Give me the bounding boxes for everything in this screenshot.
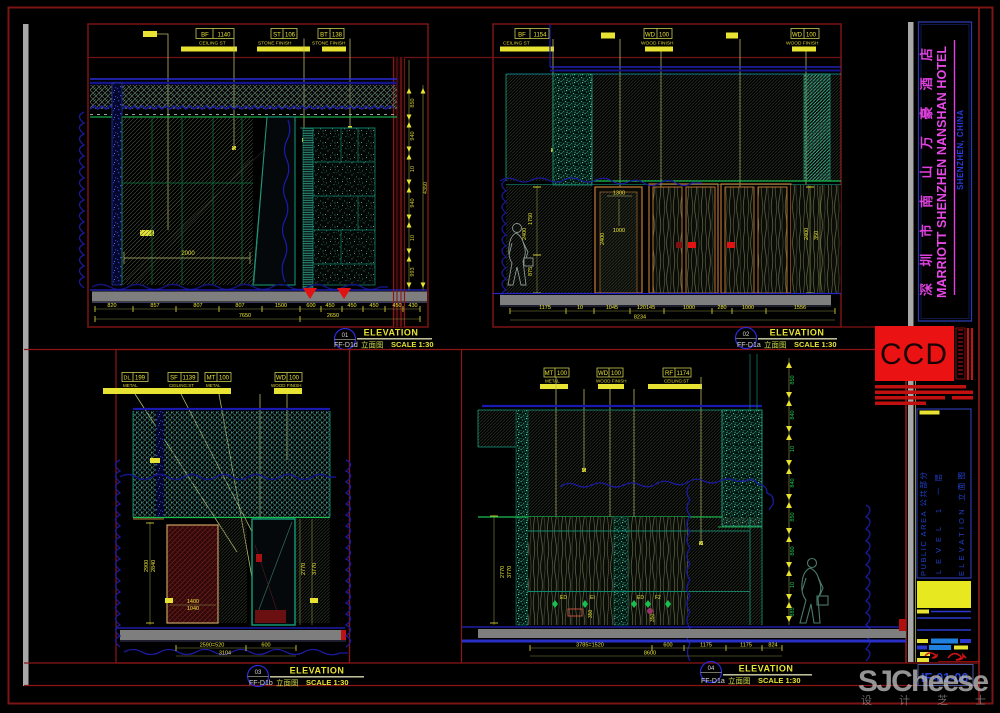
svg-text:BT: BT — [320, 33, 328, 39]
svg-text:1175: 1175 — [539, 305, 551, 311]
svg-text:FF-D1b: FF-D1b — [249, 680, 273, 687]
svg-text:840: 840 — [790, 410, 796, 419]
svg-text:SJCheese: SJCheese — [858, 665, 989, 698]
svg-text:350: 350 — [814, 231, 820, 240]
svg-text:CEILING ST: CEILING ST — [503, 41, 530, 47]
svg-text:2770: 2770 — [500, 566, 506, 578]
svg-text:8234: 8234 — [634, 315, 646, 321]
svg-text:深圳市南山万豪酒店: 深圳市南山万豪酒店 — [919, 48, 934, 296]
svg-text:ELEVATION: ELEVATION — [739, 664, 794, 674]
svg-text:FF-D1d: FF-D1d — [334, 342, 358, 349]
svg-text:SCALE 1:30: SCALE 1:30 — [758, 676, 801, 685]
svg-text:2900: 2900 — [144, 560, 150, 572]
svg-text:875: 875 — [528, 267, 534, 276]
svg-text:FF-D1a: FF-D1a — [737, 342, 761, 349]
svg-text:100: 100 — [219, 376, 230, 382]
svg-text:SHENZHEN, CHINA: SHENZHEN, CHINA — [956, 110, 965, 190]
svg-text:EI: EI — [590, 595, 595, 601]
svg-text:ELEVATION 立面图: ELEVATION 立面图 — [956, 472, 966, 576]
svg-text:2400: 2400 — [804, 228, 810, 240]
svg-text:1154: 1154 — [534, 33, 548, 39]
svg-text:3770: 3770 — [507, 566, 513, 578]
svg-text:857: 857 — [150, 303, 159, 309]
svg-text:F2: F2 — [655, 595, 661, 601]
svg-text:100: 100 — [806, 33, 817, 39]
svg-text:1000: 1000 — [742, 305, 754, 311]
svg-text:820: 820 — [107, 303, 116, 309]
svg-text:ED: ED — [637, 595, 644, 601]
svg-text:1400: 1400 — [187, 599, 199, 605]
svg-text:100: 100 — [557, 371, 568, 377]
svg-text:WD: WD — [276, 376, 287, 382]
svg-text:940: 940 — [410, 131, 416, 140]
svg-text:450: 450 — [369, 303, 378, 309]
svg-text:10: 10 — [790, 446, 796, 452]
svg-text:2840: 2840 — [151, 560, 157, 572]
svg-text:MT: MT — [207, 376, 216, 382]
svg-text:1139: 1139 — [183, 376, 197, 382]
svg-text:2650: 2650 — [327, 313, 339, 319]
svg-text:450: 450 — [347, 303, 356, 309]
svg-text:3785=1520: 3785=1520 — [576, 643, 604, 649]
svg-text:10: 10 — [577, 305, 583, 311]
svg-text:WD: WD — [645, 33, 656, 39]
svg-text:SF: SF — [170, 376, 178, 382]
svg-text:138: 138 — [332, 33, 343, 39]
svg-text:807: 807 — [235, 303, 244, 309]
svg-text:2400: 2400 — [600, 233, 606, 245]
svg-text:3104: 3104 — [219, 651, 231, 657]
svg-text:1000: 1000 — [683, 305, 695, 311]
svg-text:SCALE 1:30: SCALE 1:30 — [794, 340, 837, 349]
svg-text:04: 04 — [708, 666, 715, 672]
svg-text:MARRIOTT SHENZHEN NANSHAN HOTE: MARRIOTT SHENZHEN NANSHAN HOTEL — [935, 46, 949, 298]
svg-text:1500: 1500 — [275, 303, 287, 309]
svg-text:600: 600 — [261, 643, 270, 649]
svg-text:DL: DL — [123, 376, 130, 382]
svg-text:METAL: METAL — [545, 379, 560, 384]
svg-text:2400: 2400 — [522, 228, 528, 240]
svg-text:ELEVATION: ELEVATION — [364, 328, 419, 338]
svg-text:立面图: 立面图 — [728, 676, 751, 686]
svg-text:850: 850 — [790, 375, 796, 384]
svg-text:850: 850 — [790, 512, 796, 521]
svg-text:1175: 1175 — [740, 643, 752, 649]
svg-text:立面图: 立面图 — [361, 340, 384, 350]
svg-text:940: 940 — [410, 198, 416, 207]
svg-text:10: 10 — [410, 235, 416, 241]
svg-text:350: 350 — [588, 609, 594, 618]
svg-text:807: 807 — [193, 303, 202, 309]
svg-text:10: 10 — [410, 166, 416, 172]
svg-text:1045: 1045 — [606, 305, 618, 311]
svg-text:1750: 1750 — [528, 213, 534, 225]
svg-text:100: 100 — [611, 371, 622, 377]
svg-text:CEILING:ST: CEILING:ST — [664, 379, 689, 384]
svg-text:8600: 8600 — [644, 651, 656, 657]
svg-text:WOOD FINISH: WOOD FINISH — [271, 383, 302, 388]
svg-text:BF: BF — [518, 33, 526, 39]
svg-text:BF: BF — [201, 33, 209, 39]
svg-text:02: 02 — [743, 332, 750, 338]
svg-text:METAL: METAL — [123, 383, 138, 388]
svg-text:2000: 2000 — [181, 251, 195, 257]
svg-text:WOOD FINISH: WOOD FINISH — [641, 41, 674, 47]
svg-text:1040: 1040 — [187, 606, 199, 612]
svg-text:1300: 1300 — [613, 191, 625, 197]
svg-text:SCALE 1:30: SCALE 1:30 — [391, 340, 434, 349]
svg-text:2770: 2770 — [301, 563, 307, 575]
svg-text:860: 860 — [790, 546, 796, 555]
svg-text:立面图: 立面图 — [276, 678, 299, 688]
svg-text:430: 430 — [408, 303, 417, 309]
svg-text:10: 10 — [790, 582, 796, 588]
svg-text:450: 450 — [392, 303, 401, 309]
svg-text:850: 850 — [410, 98, 416, 107]
svg-text:03: 03 — [255, 670, 262, 676]
svg-text:WD: WD — [792, 33, 803, 39]
svg-text:立面图: 立面图 — [764, 340, 787, 350]
svg-text:106: 106 — [285, 33, 296, 39]
svg-text:CEILING:ST: CEILING:ST — [169, 383, 194, 388]
svg-text:1175: 1175 — [700, 643, 712, 649]
svg-text:ELEVATION: ELEVATION — [770, 328, 825, 338]
svg-text:600: 600 — [306, 303, 315, 309]
svg-text:100: 100 — [289, 376, 300, 382]
svg-text:885: 885 — [790, 607, 796, 616]
svg-text:PUBLIC AREA 公共部分: PUBLIC AREA 公共部分 — [918, 472, 928, 577]
svg-text:1556: 1556 — [794, 305, 806, 311]
svg-text:600: 600 — [663, 643, 672, 649]
svg-text:1140: 1140 — [218, 33, 232, 39]
svg-text:450: 450 — [325, 303, 334, 309]
svg-text:2590=520: 2590=520 — [200, 643, 225, 649]
svg-text:MT: MT — [545, 371, 554, 377]
svg-text:840: 840 — [790, 478, 796, 487]
svg-text:RF: RF — [665, 371, 673, 377]
svg-text:3770: 3770 — [312, 563, 318, 575]
svg-text:1000: 1000 — [613, 228, 625, 234]
svg-text:ST: ST — [273, 33, 281, 39]
svg-text:100: 100 — [659, 33, 670, 39]
svg-text:STONE FINISH: STONE FINISH — [258, 41, 292, 47]
svg-text:WOOD FINISH: WOOD FINISH — [786, 41, 819, 47]
svg-text:4350: 4350 — [423, 182, 429, 194]
svg-text:350: 350 — [650, 613, 656, 622]
svg-text:01: 01 — [342, 333, 349, 339]
svg-text:280: 280 — [717, 305, 726, 311]
svg-text:WD: WD — [598, 371, 609, 377]
svg-text:CCD: CCD — [880, 338, 948, 371]
svg-text:设计芝士: 设计芝士 — [861, 694, 1000, 707]
svg-text:120145: 120145 — [637, 305, 655, 311]
svg-text:METAL: METAL — [206, 383, 221, 388]
svg-text:FF-D1a: FF-D1a — [701, 678, 725, 685]
svg-text:199: 199 — [135, 376, 146, 382]
svg-text:STONE FINISH: STONE FINISH — [312, 41, 346, 47]
svg-text:7650: 7650 — [239, 313, 251, 319]
svg-text:1174: 1174 — [677, 371, 691, 377]
svg-text:CEILING ST: CEILING ST — [199, 41, 226, 47]
svg-text:ELEVATION: ELEVATION — [290, 666, 345, 676]
svg-text:SCALE 1:30: SCALE 1:30 — [306, 678, 349, 687]
svg-text:ED: ED — [560, 595, 567, 601]
svg-text:824: 824 — [768, 643, 777, 649]
svg-text:WOOD FINISH: WOOD FINISH — [596, 379, 627, 384]
svg-text:993: 993 — [410, 267, 416, 276]
